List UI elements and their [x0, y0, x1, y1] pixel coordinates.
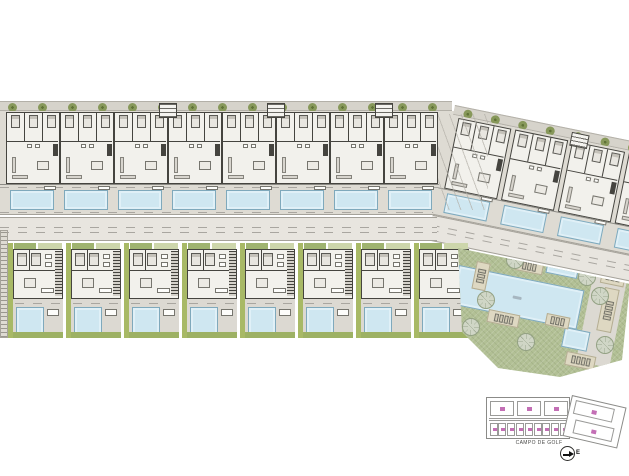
apartment-unit [276, 112, 330, 184]
terrace-dash-line [0, 212, 452, 213]
bed-icon [365, 253, 375, 266]
sofa-icon [282, 157, 286, 173]
villa-pool [364, 307, 392, 335]
bed-icon [191, 253, 201, 266]
interior-wall [188, 270, 229, 271]
interior-wall [510, 158, 560, 169]
private-pool [172, 190, 216, 210]
bed-icon [379, 253, 389, 266]
sofa-icon [508, 192, 524, 199]
interior-wall [435, 250, 436, 270]
table-icon [37, 161, 49, 170]
lounger-icon [602, 315, 611, 321]
bath-fixture [27, 144, 32, 148]
bath-fixture [103, 262, 110, 267]
key-plan-villa [534, 423, 542, 436]
entrance-stairs [375, 103, 393, 118]
private-pool [334, 190, 378, 210]
villa-plan [303, 249, 353, 299]
bed-icon [75, 253, 85, 266]
kitchen-counter [157, 288, 170, 293]
garden-tree-icon [596, 336, 614, 354]
villa-pool [248, 307, 276, 335]
villa-plan [361, 249, 411, 299]
bed-icon [119, 115, 128, 128]
ramp-area [438, 114, 488, 210]
terrace-dash-line [247, 303, 293, 304]
interior-wall [331, 141, 382, 142]
bed-icon [227, 115, 236, 128]
interior-wall [61, 141, 112, 142]
sun-pad [163, 309, 175, 316]
kitchen-counter [41, 288, 54, 293]
key-plan-unit-label [591, 429, 597, 434]
lawn-strip [419, 332, 469, 338]
villa [240, 243, 298, 338]
sun-pad [221, 309, 233, 316]
sofa-icon [66, 175, 82, 179]
site-plan: CAMPO DE GOLF E [0, 0, 629, 476]
sofa-icon [509, 175, 516, 191]
interior-wall [246, 270, 287, 271]
bath-fixture [197, 144, 202, 148]
stairs [229, 251, 236, 296]
interior-wall [115, 141, 166, 142]
interior-wall [420, 113, 421, 141]
interior-wall [7, 141, 58, 142]
bath-fixture [161, 262, 168, 267]
private-pool [388, 190, 432, 210]
stairs [287, 251, 294, 296]
key-plan [484, 395, 629, 445]
north-arrow-label: E [576, 450, 580, 456]
table-icon [140, 278, 152, 288]
sofa-icon [12, 157, 16, 173]
bed-icon [245, 115, 254, 128]
sofa-icon [566, 186, 573, 202]
bed-icon [205, 253, 215, 266]
villa-plan [13, 249, 63, 299]
bed-icon [425, 115, 434, 128]
lawn-strip [71, 332, 121, 338]
interior-wall [312, 113, 313, 141]
interior-wall [319, 250, 320, 270]
bed-icon [317, 115, 326, 128]
lounger-icon [508, 316, 514, 325]
key-plan-top-block [517, 401, 541, 416]
bath-fixture [219, 262, 226, 267]
interior-wall [240, 113, 241, 141]
plunge-pool [561, 327, 590, 352]
bath-fixture [593, 178, 599, 183]
wardrobe [323, 144, 328, 156]
wardrobe [553, 170, 560, 183]
bath-fixture [219, 254, 226, 259]
bed-icon [17, 253, 27, 266]
private-pool [64, 190, 108, 210]
key-plan-villa [507, 423, 515, 436]
key-plan-villa [551, 423, 559, 436]
terrace-dash-line [305, 303, 351, 304]
table-icon [314, 278, 326, 288]
interior-wall [567, 170, 617, 181]
bath-fixture [351, 144, 356, 148]
kitchen-counter [273, 288, 286, 293]
bath-fixture [393, 262, 400, 267]
key-plan-unit-label [501, 428, 505, 431]
bath-fixture [161, 254, 168, 259]
interior-wall [78, 113, 79, 141]
sofa-icon [565, 204, 581, 211]
stairs [113, 251, 120, 296]
villa-garden [303, 299, 353, 338]
villa [182, 243, 240, 338]
private-pool [118, 190, 162, 210]
bath-fixture [359, 144, 364, 148]
villa-pool [190, 307, 218, 335]
lounger-icon [585, 358, 591, 367]
key-plan-villa [490, 423, 498, 436]
wardrobe [53, 144, 58, 156]
interior-wall [366, 113, 367, 141]
villa-garden [187, 299, 237, 338]
wardrobe [269, 144, 274, 156]
terrace-pad [206, 186, 218, 190]
bed-icon [321, 253, 331, 266]
bath-fixture [537, 167, 543, 172]
interior-wall [258, 113, 259, 141]
bed-icon [353, 115, 362, 128]
road-center-line [0, 232, 437, 233]
terrace-pad [98, 186, 110, 190]
table-icon [361, 161, 373, 170]
key-plan-top-block [544, 401, 568, 416]
apartment-unit [60, 112, 114, 184]
key-plan-unit-label [545, 428, 549, 431]
bath-fixture [335, 254, 342, 259]
bath-fixture [335, 262, 342, 267]
table-icon [307, 161, 319, 170]
terrace-dash-line [421, 303, 467, 304]
sofa-icon [336, 157, 340, 173]
bath-fixture [297, 144, 302, 148]
lawn-strip [361, 332, 411, 338]
key-plan-unit-label [537, 428, 541, 431]
stairs [171, 251, 178, 296]
apartment-unit [222, 112, 276, 184]
garden-tree-icon [477, 291, 495, 309]
bed-icon [133, 253, 143, 266]
table-icon [91, 161, 103, 170]
kitchen-counter [99, 288, 112, 293]
lounger-icon [476, 278, 485, 284]
interior-wall [24, 113, 25, 141]
bed-icon [11, 115, 20, 128]
terrace-pad [422, 186, 434, 190]
bed-icon [592, 149, 603, 164]
sofa-icon [336, 175, 352, 179]
villa-garden [71, 299, 121, 338]
key-plan-unit-label [519, 428, 523, 431]
bed-icon [101, 115, 110, 128]
interior-wall [420, 270, 461, 271]
lawn-strip [13, 332, 63, 338]
wardrobe [496, 159, 503, 172]
terrace-dash-line [0, 187, 452, 188]
bed-icon [609, 152, 620, 167]
bath-fixture [81, 144, 86, 148]
sun-pad [337, 309, 349, 316]
table-icon [198, 278, 210, 288]
villa-pool [306, 307, 334, 335]
bed-icon [209, 115, 218, 128]
stairs [55, 251, 62, 296]
lawn-strip [245, 332, 295, 338]
key-plan-villa [498, 423, 506, 436]
sofa-icon [390, 175, 406, 179]
interior-wall [130, 270, 171, 271]
villa [8, 243, 66, 338]
key-plan-annex-block [573, 400, 615, 423]
bed-icon [335, 115, 344, 128]
lawn-strip [303, 332, 353, 338]
lawn-strip [129, 332, 179, 338]
table-icon [415, 161, 427, 170]
interior-wall [261, 250, 262, 270]
bed-icon [47, 115, 56, 128]
table-icon [145, 161, 157, 170]
sofa-icon [66, 157, 70, 173]
private-pool [280, 190, 324, 210]
terrace-pad [368, 186, 380, 190]
terrace-pad [314, 186, 326, 190]
entrance-stairs [267, 103, 285, 118]
garden-tree-icon [462, 318, 480, 336]
villa [356, 243, 414, 338]
sofa-icon [12, 175, 28, 179]
villa [66, 243, 124, 338]
table-icon [253, 161, 265, 170]
bath-fixture [251, 144, 256, 148]
stairs [345, 251, 352, 296]
villa-plan [187, 249, 237, 299]
table-icon [372, 278, 384, 288]
wardrobe [377, 144, 382, 156]
sofa-icon [228, 175, 244, 179]
terrace-pad [152, 186, 164, 190]
villa-garden [361, 299, 411, 338]
sun-pad [279, 309, 291, 316]
terrace-pad [44, 186, 56, 190]
villa [298, 243, 356, 338]
interior-wall [488, 126, 495, 154]
apartment-unit [168, 112, 222, 184]
interior-wall [169, 141, 220, 142]
interior-wall [96, 113, 97, 141]
sun-pad [105, 309, 117, 316]
key-plan-annex [563, 395, 627, 449]
bed-icon [437, 253, 447, 266]
terrace-dash-line [189, 303, 235, 304]
bath-fixture [89, 144, 94, 148]
road [0, 217, 437, 241]
kitchen-counter [215, 288, 228, 293]
key-plan-unit-label [500, 407, 505, 411]
bath-fixture [277, 262, 284, 267]
garden-tree-icon [517, 333, 535, 351]
bed-icon [535, 137, 546, 152]
villa [124, 243, 182, 338]
apartment-unit [6, 112, 60, 184]
bath-fixture [451, 254, 458, 259]
wardrobe [161, 144, 166, 156]
bath-fixture [45, 262, 52, 267]
bed-icon [249, 253, 259, 266]
villa-garden [13, 299, 63, 338]
bath-fixture [405, 144, 410, 148]
north-arrow: E [560, 446, 588, 463]
bed-icon [263, 253, 273, 266]
wardrobe [107, 144, 112, 156]
table-icon [534, 184, 548, 195]
table-icon [430, 278, 442, 288]
bed-icon [137, 115, 146, 128]
wardrobe [215, 144, 220, 156]
terrace-dash-line [73, 303, 119, 304]
sofa-icon [622, 216, 629, 223]
key-plan-unit-label [493, 428, 497, 431]
key-plan-villa [525, 423, 533, 436]
bath-fixture [305, 144, 310, 148]
entrance-stairs [159, 103, 177, 118]
bath-fixture [393, 254, 400, 259]
interior-wall [223, 141, 274, 142]
villa-pool [74, 307, 102, 335]
key-plan-unit-label [554, 428, 558, 431]
private-pool [226, 190, 270, 210]
interior-wall [385, 141, 436, 142]
villa-garden [129, 299, 179, 338]
terrace-pad [260, 186, 272, 190]
interior-wall [14, 270, 55, 271]
lawn-strip [187, 332, 237, 338]
north-arrow-head-icon [569, 451, 574, 457]
bath-fixture [243, 144, 248, 148]
building-front-line [0, 184, 455, 185]
north-arrow-circle [560, 446, 575, 461]
key-plan-unit-label [510, 428, 514, 431]
terrace-dash-line [363, 303, 409, 304]
bed-icon [147, 253, 157, 266]
bath-fixture [586, 177, 592, 182]
interior-wall [348, 113, 349, 141]
sun-pad [47, 309, 59, 316]
apartment-unit [114, 112, 168, 184]
pool-area-label [512, 295, 521, 300]
sofa-icon [623, 198, 629, 214]
bath-fixture [103, 254, 110, 259]
sofa-icon [282, 175, 298, 179]
bed-icon [423, 253, 433, 266]
key-plan-unit-label [554, 407, 559, 411]
private-pool [10, 190, 54, 210]
interior-wall [42, 113, 43, 141]
interior-wall [304, 270, 345, 271]
kitchen-counter [447, 288, 460, 293]
table-icon [82, 278, 94, 288]
bed-icon [307, 253, 317, 266]
interior-wall [527, 134, 534, 162]
bath-fixture [143, 144, 148, 148]
road-center-line [0, 227, 437, 228]
apartment-unit [330, 112, 384, 184]
bed-icon [495, 129, 506, 144]
interior-wall [186, 113, 187, 141]
villa-pool [132, 307, 160, 335]
interior-wall [87, 250, 88, 270]
retaining-wall [0, 230, 8, 338]
bed-icon [65, 115, 74, 128]
interior-wall [277, 141, 328, 142]
bath-fixture [189, 144, 194, 148]
interior-wall [377, 250, 378, 270]
bed-icon [191, 115, 200, 128]
terrace-dash-line [15, 303, 61, 304]
bath-fixture [413, 144, 418, 148]
table-icon [24, 278, 36, 288]
bath-fixture [277, 254, 284, 259]
interior-wall [72, 270, 113, 271]
key-plan-unit-label [591, 410, 597, 415]
key-plan-main-block [486, 397, 570, 439]
interior-wall [150, 113, 151, 141]
sofa-icon [174, 157, 178, 173]
bath-fixture [451, 262, 458, 267]
bed-icon [89, 253, 99, 266]
interior-wall [624, 181, 629, 192]
bath-fixture [529, 165, 535, 170]
lounger-icon [560, 318, 566, 327]
sofa-icon [120, 175, 136, 179]
bed-icon [29, 115, 38, 128]
villa-pool [16, 307, 44, 335]
interior-wall [203, 250, 204, 270]
wardrobe [431, 144, 436, 156]
wardrobe [609, 182, 616, 195]
interior-wall [402, 113, 403, 141]
bed-icon [517, 133, 528, 148]
sofa-icon [390, 157, 394, 173]
table-icon [256, 278, 268, 288]
key-plan-unit-label [528, 428, 532, 431]
apartment-unit [384, 112, 438, 184]
interior-wall [204, 113, 205, 141]
bath-fixture [135, 144, 140, 148]
villa-plan [245, 249, 295, 299]
villa-garden [245, 299, 295, 338]
interior-wall [132, 113, 133, 141]
bed-icon [31, 253, 41, 266]
bed-icon [299, 115, 308, 128]
interior-wall [29, 250, 30, 270]
kitchen-counter [389, 288, 402, 293]
interior-wall [145, 250, 146, 270]
table-icon [199, 161, 211, 170]
interior-wall [362, 270, 403, 271]
interior-wall [584, 146, 591, 174]
bed-icon [552, 141, 563, 156]
key-plan-road [489, 418, 568, 421]
